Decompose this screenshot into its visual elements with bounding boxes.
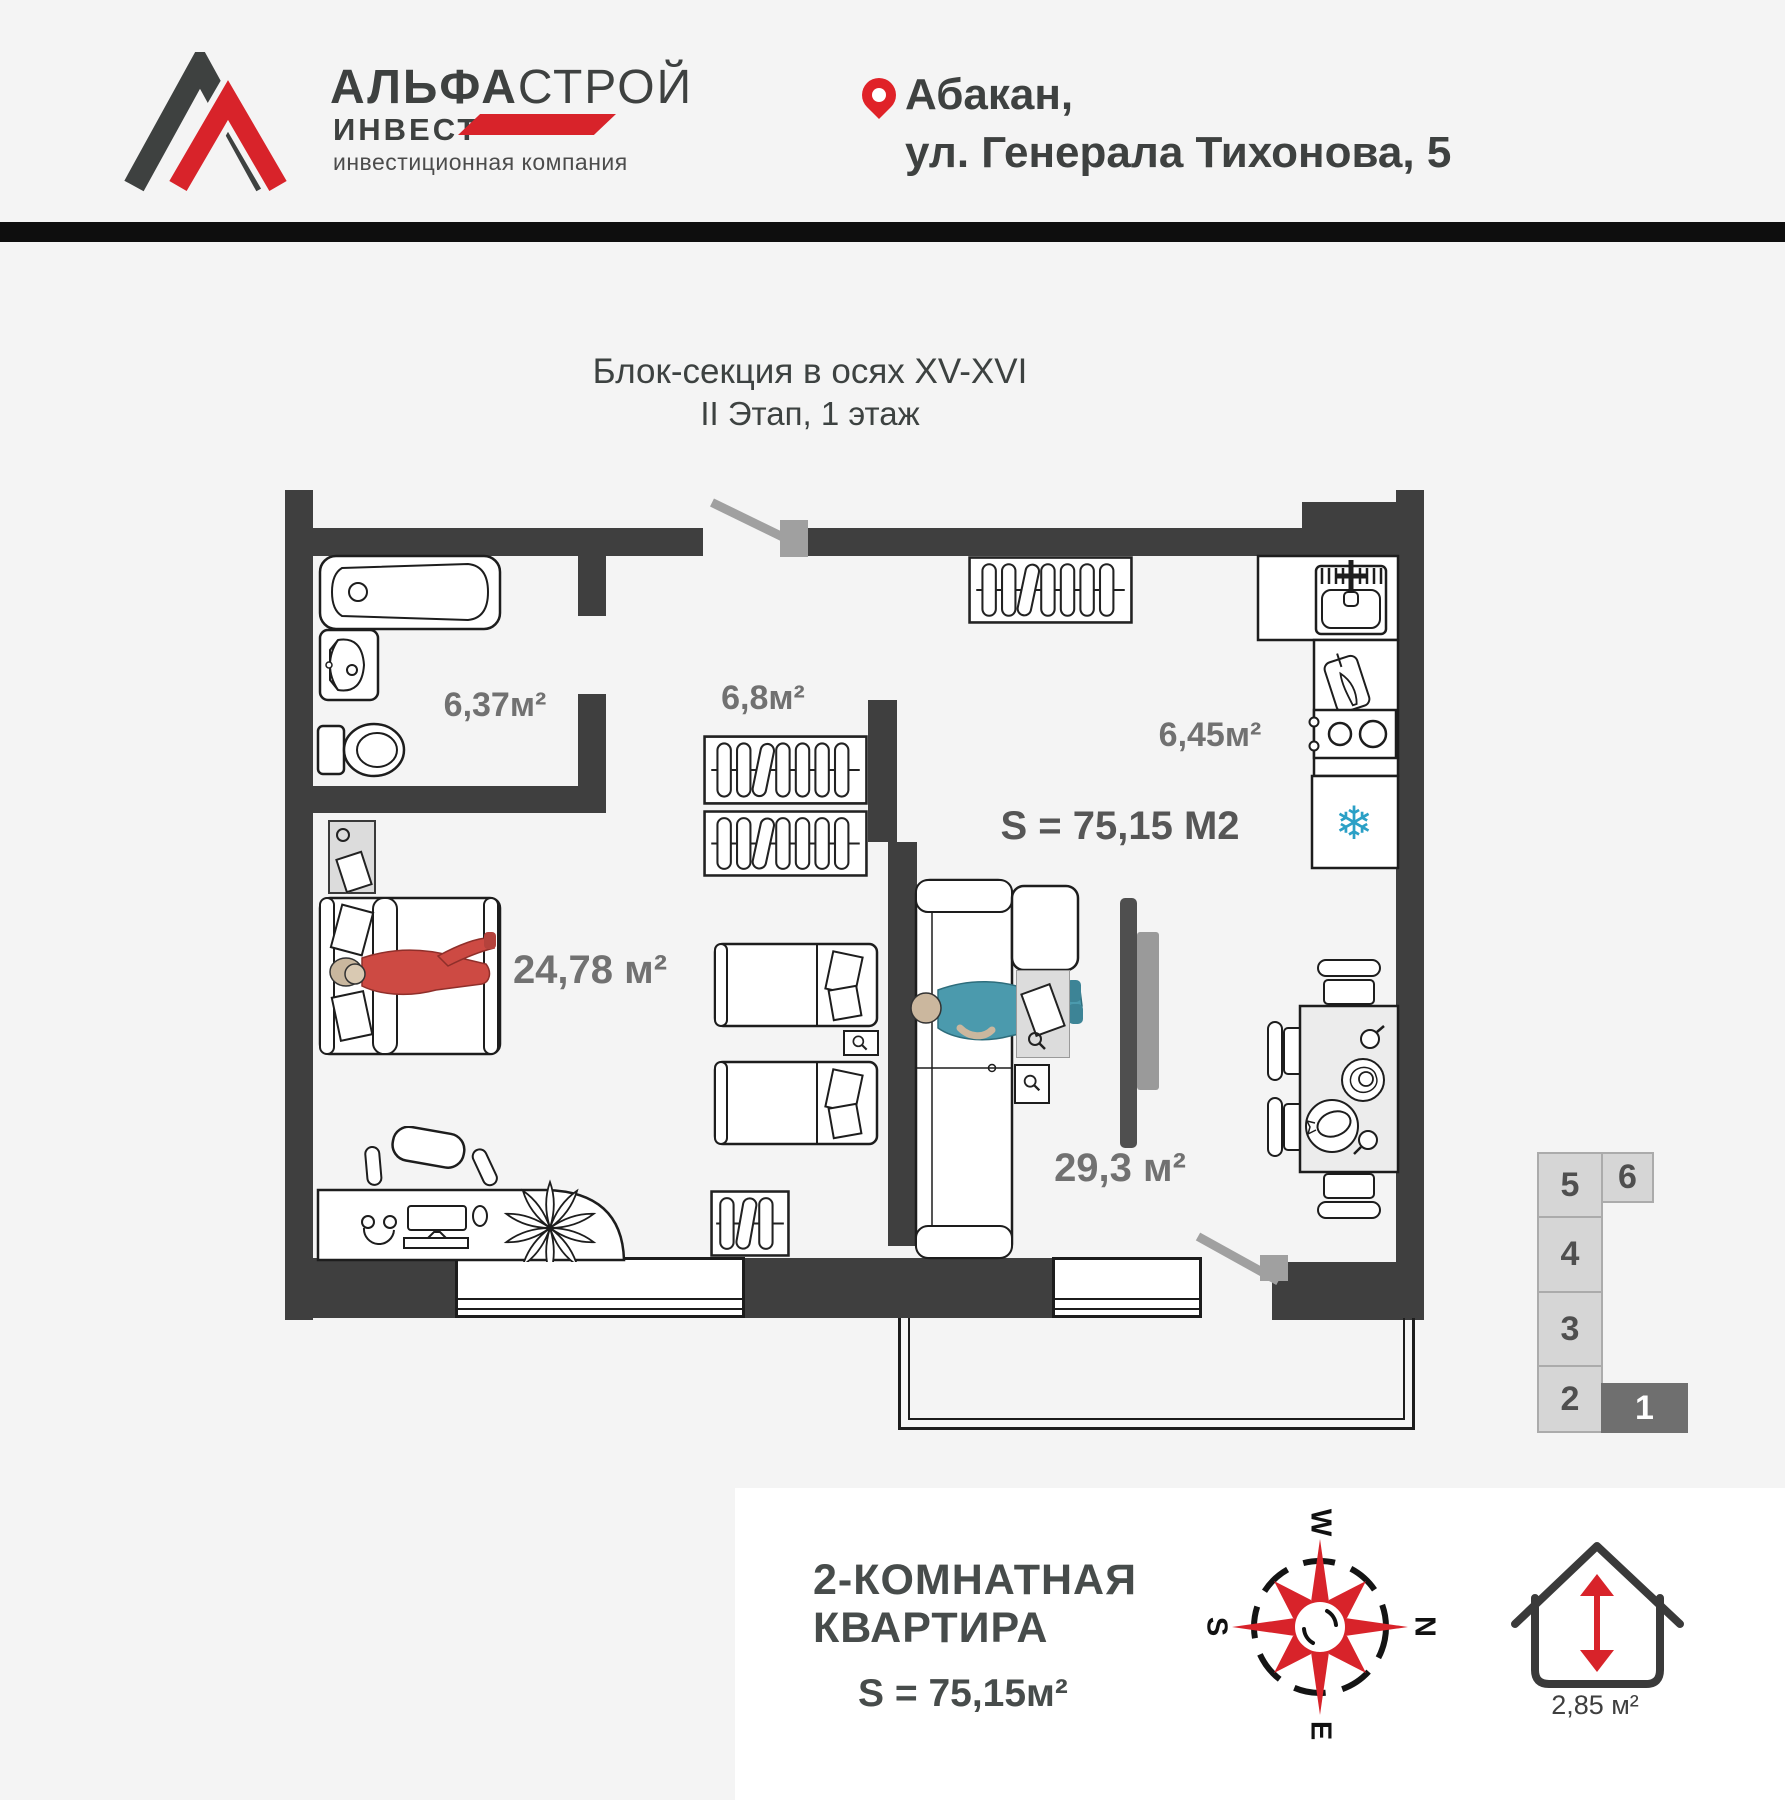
header-divider-bar [0,222,1785,242]
chair-left-1 [1268,1022,1282,1080]
wardrobe-small-bottom [710,1190,790,1257]
address-line1: Абакан, [905,70,1073,120]
bathroom-sink-icon [318,628,380,702]
lamp-icon [336,828,350,842]
logo-title: АЛЬФАСТРОЙ [330,60,693,115]
entrance-door-block [780,520,808,557]
balcony-door-block [1260,1255,1288,1281]
compass-label-e: E [1304,1711,1337,1751]
room-label-bedroom: 24,78 м² [440,948,740,993]
logo-title-light: СТРОЙ [518,61,693,114]
cup-1 [1361,1030,1379,1048]
compass-label-w: W [1304,1503,1337,1543]
compass-label-s: S [1200,1607,1233,1647]
tv-mount-panel [1137,932,1159,1090]
tv-icon [1120,898,1137,1148]
wall-top-a [285,528,703,556]
location-pin-hole [869,85,889,105]
toilet-icon [316,720,408,780]
balcony-inner-line [908,1318,1405,1420]
balcony-area-label: 2,85 м² [1520,1690,1670,1721]
section-cell-1-active: 1 [1601,1383,1688,1433]
logo-title-bold: АЛЬФА [330,61,518,114]
wardrobe-living-top [968,556,1133,624]
flyer-canvas: АЛЬФАСТРОЙ ИНВЕСТ инвестиционная компани… [0,0,1785,1800]
apartment-area: S = 75,15м² [858,1672,1068,1716]
section-cell-3: 3 [1537,1291,1603,1367]
apartment-type-line1: 2-КОМНАТНАЯ [813,1556,1137,1605]
sofa-with-person [900,878,1085,1260]
logo-tagline: инвестиционная компания [333,149,628,176]
dining-set [1266,958,1400,1220]
address-line2: ул. Генерала Тихонова, 5 [905,128,1451,178]
wall-bath-right-upper [578,528,606,616]
book-on-table [335,851,373,894]
apartment-type-line2: КВАРТИРА [813,1604,1048,1653]
desk-with-chair [316,1126,628,1262]
section-cell-2: 2 [1537,1365,1603,1433]
kids-nightstand [843,1030,879,1056]
chair-bottom [1318,1202,1380,1218]
section-cell-5: 5 [1537,1152,1603,1218]
bedside-table [328,820,376,894]
window-bedroom [455,1257,745,1318]
section-cell-4: 4 [1537,1216,1603,1293]
plan-title-line2: II Этап, 1 этаж [480,395,1140,433]
compass-rose-icon [1230,1537,1410,1717]
kid-bed-2 [713,1060,879,1146]
wardrobe-hall-2 [703,810,868,877]
coffee-table [1016,970,1070,1058]
cup-2 [1359,1131,1377,1149]
wall-bottom-b [745,1258,1052,1318]
section-cell-6: 6 [1601,1152,1654,1203]
wall-right [1396,490,1424,1320]
room-label-living: 29,3 м² [1000,1146,1240,1191]
chair-top [1318,960,1380,976]
wall-left [285,490,313,1320]
side-table [1014,1064,1050,1104]
compass-label-n: N [1408,1607,1441,1647]
wall-partition-upper [868,700,897,842]
headphones-icon [362,1216,374,1228]
wardrobe-hall-1 [703,735,868,805]
house-height-icon [1505,1532,1690,1697]
logo-subtitle: ИНВЕСТ [333,112,479,148]
location-pin-icon [855,71,903,119]
logo-red-swoosh [458,114,616,135]
room-label-hall: 6,8м² [678,679,848,718]
wall-top-b [800,528,1397,556]
logo-mark-icon [120,52,305,192]
window-living [1052,1257,1202,1318]
mouse-icon [473,1206,487,1226]
room-label-kitchen: 6,45м² [1110,716,1310,755]
wall-bottom-a [285,1258,455,1318]
wall-bottom-right-block [1272,1262,1424,1320]
room-label-bathroom: 6,37м² [380,686,610,725]
plan-title-line1: Блок-секция в осях XV-XVI [480,352,1140,392]
bathtub-icon [318,554,502,632]
snowflake-icon: ❄ [1322,796,1386,850]
chair-left-2 [1268,1098,1282,1156]
wall-bath-bottom [285,786,606,813]
total-area-label: S = 75,15 М2 [950,804,1290,849]
monitor-icon [408,1206,466,1230]
